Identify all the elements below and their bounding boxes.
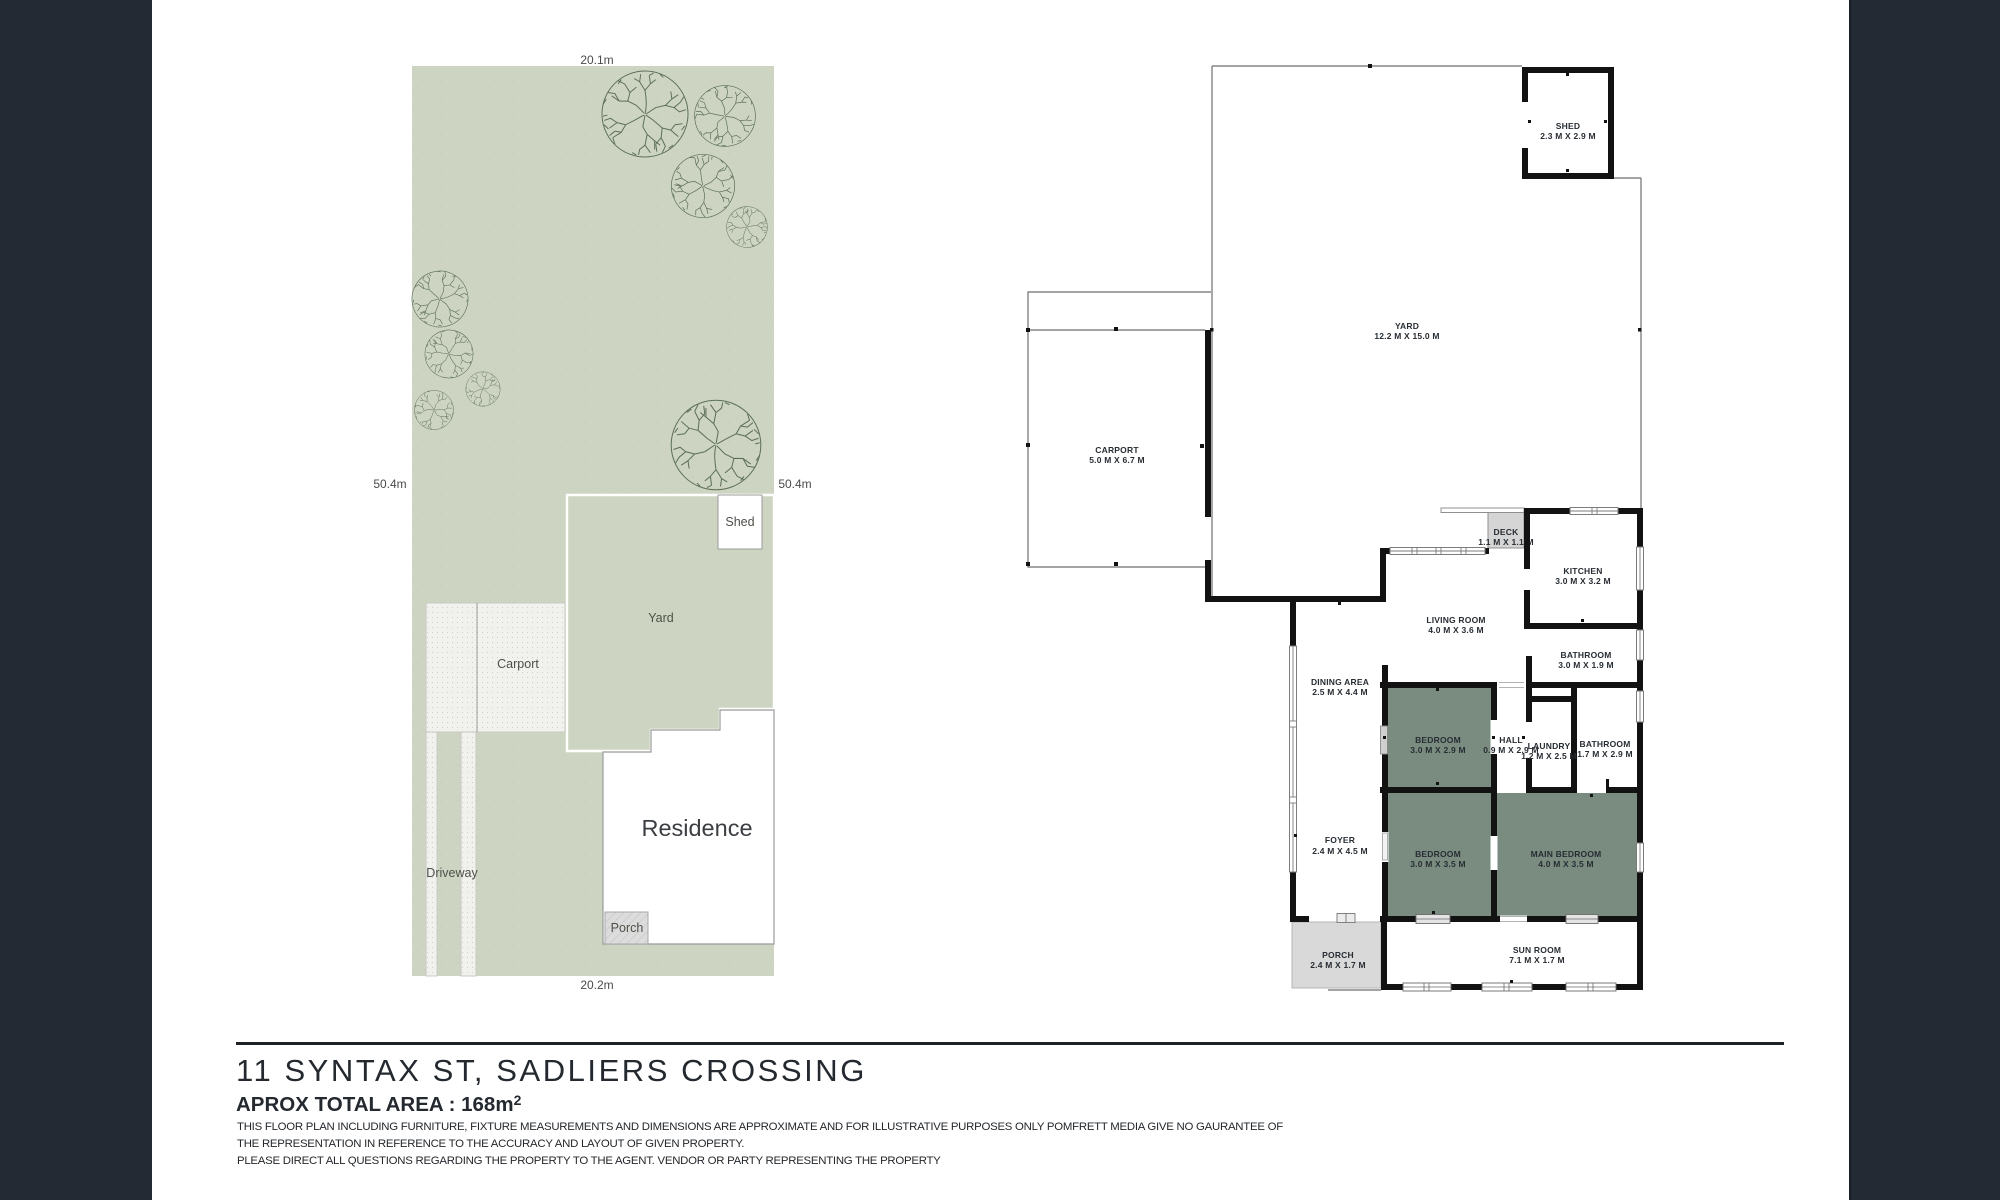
svg-text:YARD: YARD xyxy=(1395,321,1419,331)
svg-text:BEDROOM: BEDROOM xyxy=(1415,849,1461,859)
svg-text:7.1 M X 1.7 M: 7.1 M X 1.7 M xyxy=(1509,955,1565,965)
svg-text:3.0 M X 1.9 M: 3.0 M X 1.9 M xyxy=(1558,660,1614,670)
svg-text:50.4m: 50.4m xyxy=(373,477,406,491)
svg-text:1.2 M X 2.5 M: 1.2 M X 2.5 M xyxy=(1521,751,1577,761)
svg-text:3.0 M X 3.5 M: 3.0 M X 3.5 M xyxy=(1410,859,1466,869)
svg-text:DINING AREA: DINING AREA xyxy=(1311,677,1369,687)
svg-text:2.5 M X 4.4 M: 2.5 M X 4.4 M xyxy=(1312,687,1368,697)
svg-text:MAIN BEDROOM: MAIN BEDROOM xyxy=(1531,849,1602,859)
svg-text:BEDROOM: BEDROOM xyxy=(1415,735,1461,745)
svg-text:DECK: DECK xyxy=(1494,527,1520,537)
svg-text:BATHROOM: BATHROOM xyxy=(1560,650,1611,660)
svg-text:50.4m: 50.4m xyxy=(778,477,811,491)
svg-text:Carport: Carport xyxy=(497,657,539,671)
svg-text:2.3 M X 2.9 M: 2.3 M X 2.9 M xyxy=(1540,131,1596,141)
svg-text:PORCH: PORCH xyxy=(1322,950,1354,960)
svg-text:CARPORT: CARPORT xyxy=(1095,445,1139,455)
svg-text:Driveway: Driveway xyxy=(426,866,478,880)
svg-text:Shed: Shed xyxy=(725,515,754,529)
svg-text:4.0 M X 3.6 M: 4.0 M X 3.6 M xyxy=(1428,625,1484,635)
svg-text:Residence: Residence xyxy=(641,815,752,841)
svg-text:Yard: Yard xyxy=(648,611,674,625)
svg-text:3.0 M X 2.9 M: 3.0 M X 2.9 M xyxy=(1410,745,1466,755)
svg-text:SUN ROOM: SUN ROOM xyxy=(1513,945,1561,955)
svg-text:20.2m: 20.2m xyxy=(580,978,613,992)
svg-text:4.0 M X 3.5 M: 4.0 M X 3.5 M xyxy=(1538,859,1594,869)
svg-text:SHED: SHED xyxy=(1556,121,1580,131)
svg-text:Porch: Porch xyxy=(611,921,644,935)
svg-text:LIVING ROOM: LIVING ROOM xyxy=(1426,615,1485,625)
svg-text:3.0 M X 3.2 M: 3.0 M X 3.2 M xyxy=(1555,576,1611,586)
svg-text:LAUNDRY: LAUNDRY xyxy=(1528,741,1571,751)
svg-text:12.2 M X 15.0 M: 12.2 M X 15.0 M xyxy=(1374,331,1439,341)
svg-text:20.1m: 20.1m xyxy=(580,53,613,67)
svg-text:1.7 M X 2.9 M: 1.7 M X 2.9 M xyxy=(1577,749,1633,759)
svg-text:KITCHEN: KITCHEN xyxy=(1563,566,1602,576)
svg-text:FOYER: FOYER xyxy=(1325,835,1355,845)
svg-text:HALL: HALL xyxy=(1499,735,1522,745)
svg-text:5.0 M X 6.7 M: 5.0 M X 6.7 M xyxy=(1089,455,1145,465)
svg-text:2.4 M X 1.7 M: 2.4 M X 1.7 M xyxy=(1310,960,1366,970)
svg-text:BATHROOM: BATHROOM xyxy=(1579,739,1630,749)
svg-text:2.4 M X 4.5 M: 2.4 M X 4.5 M xyxy=(1312,846,1368,856)
